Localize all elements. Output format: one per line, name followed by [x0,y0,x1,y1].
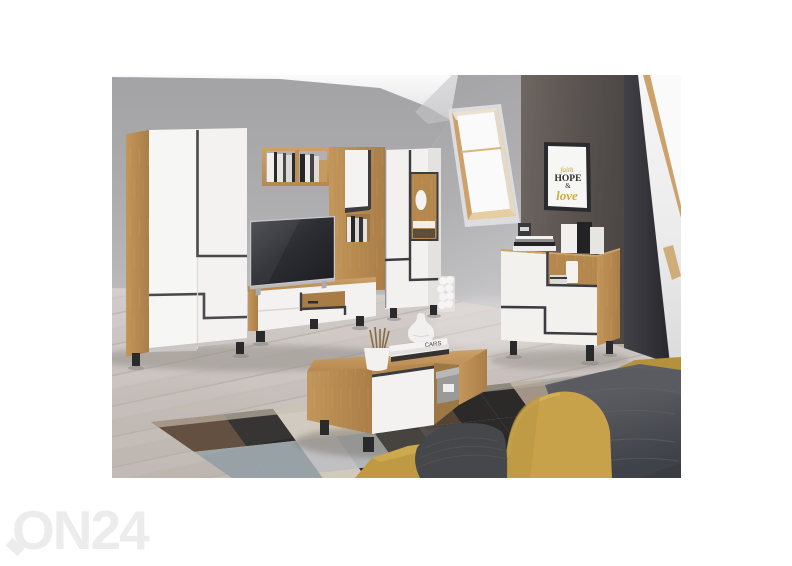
svg-text:ON24: ON24 [12,499,150,561]
svg-text:love: love [556,188,578,203]
svg-text:faith: faith [561,166,574,174]
